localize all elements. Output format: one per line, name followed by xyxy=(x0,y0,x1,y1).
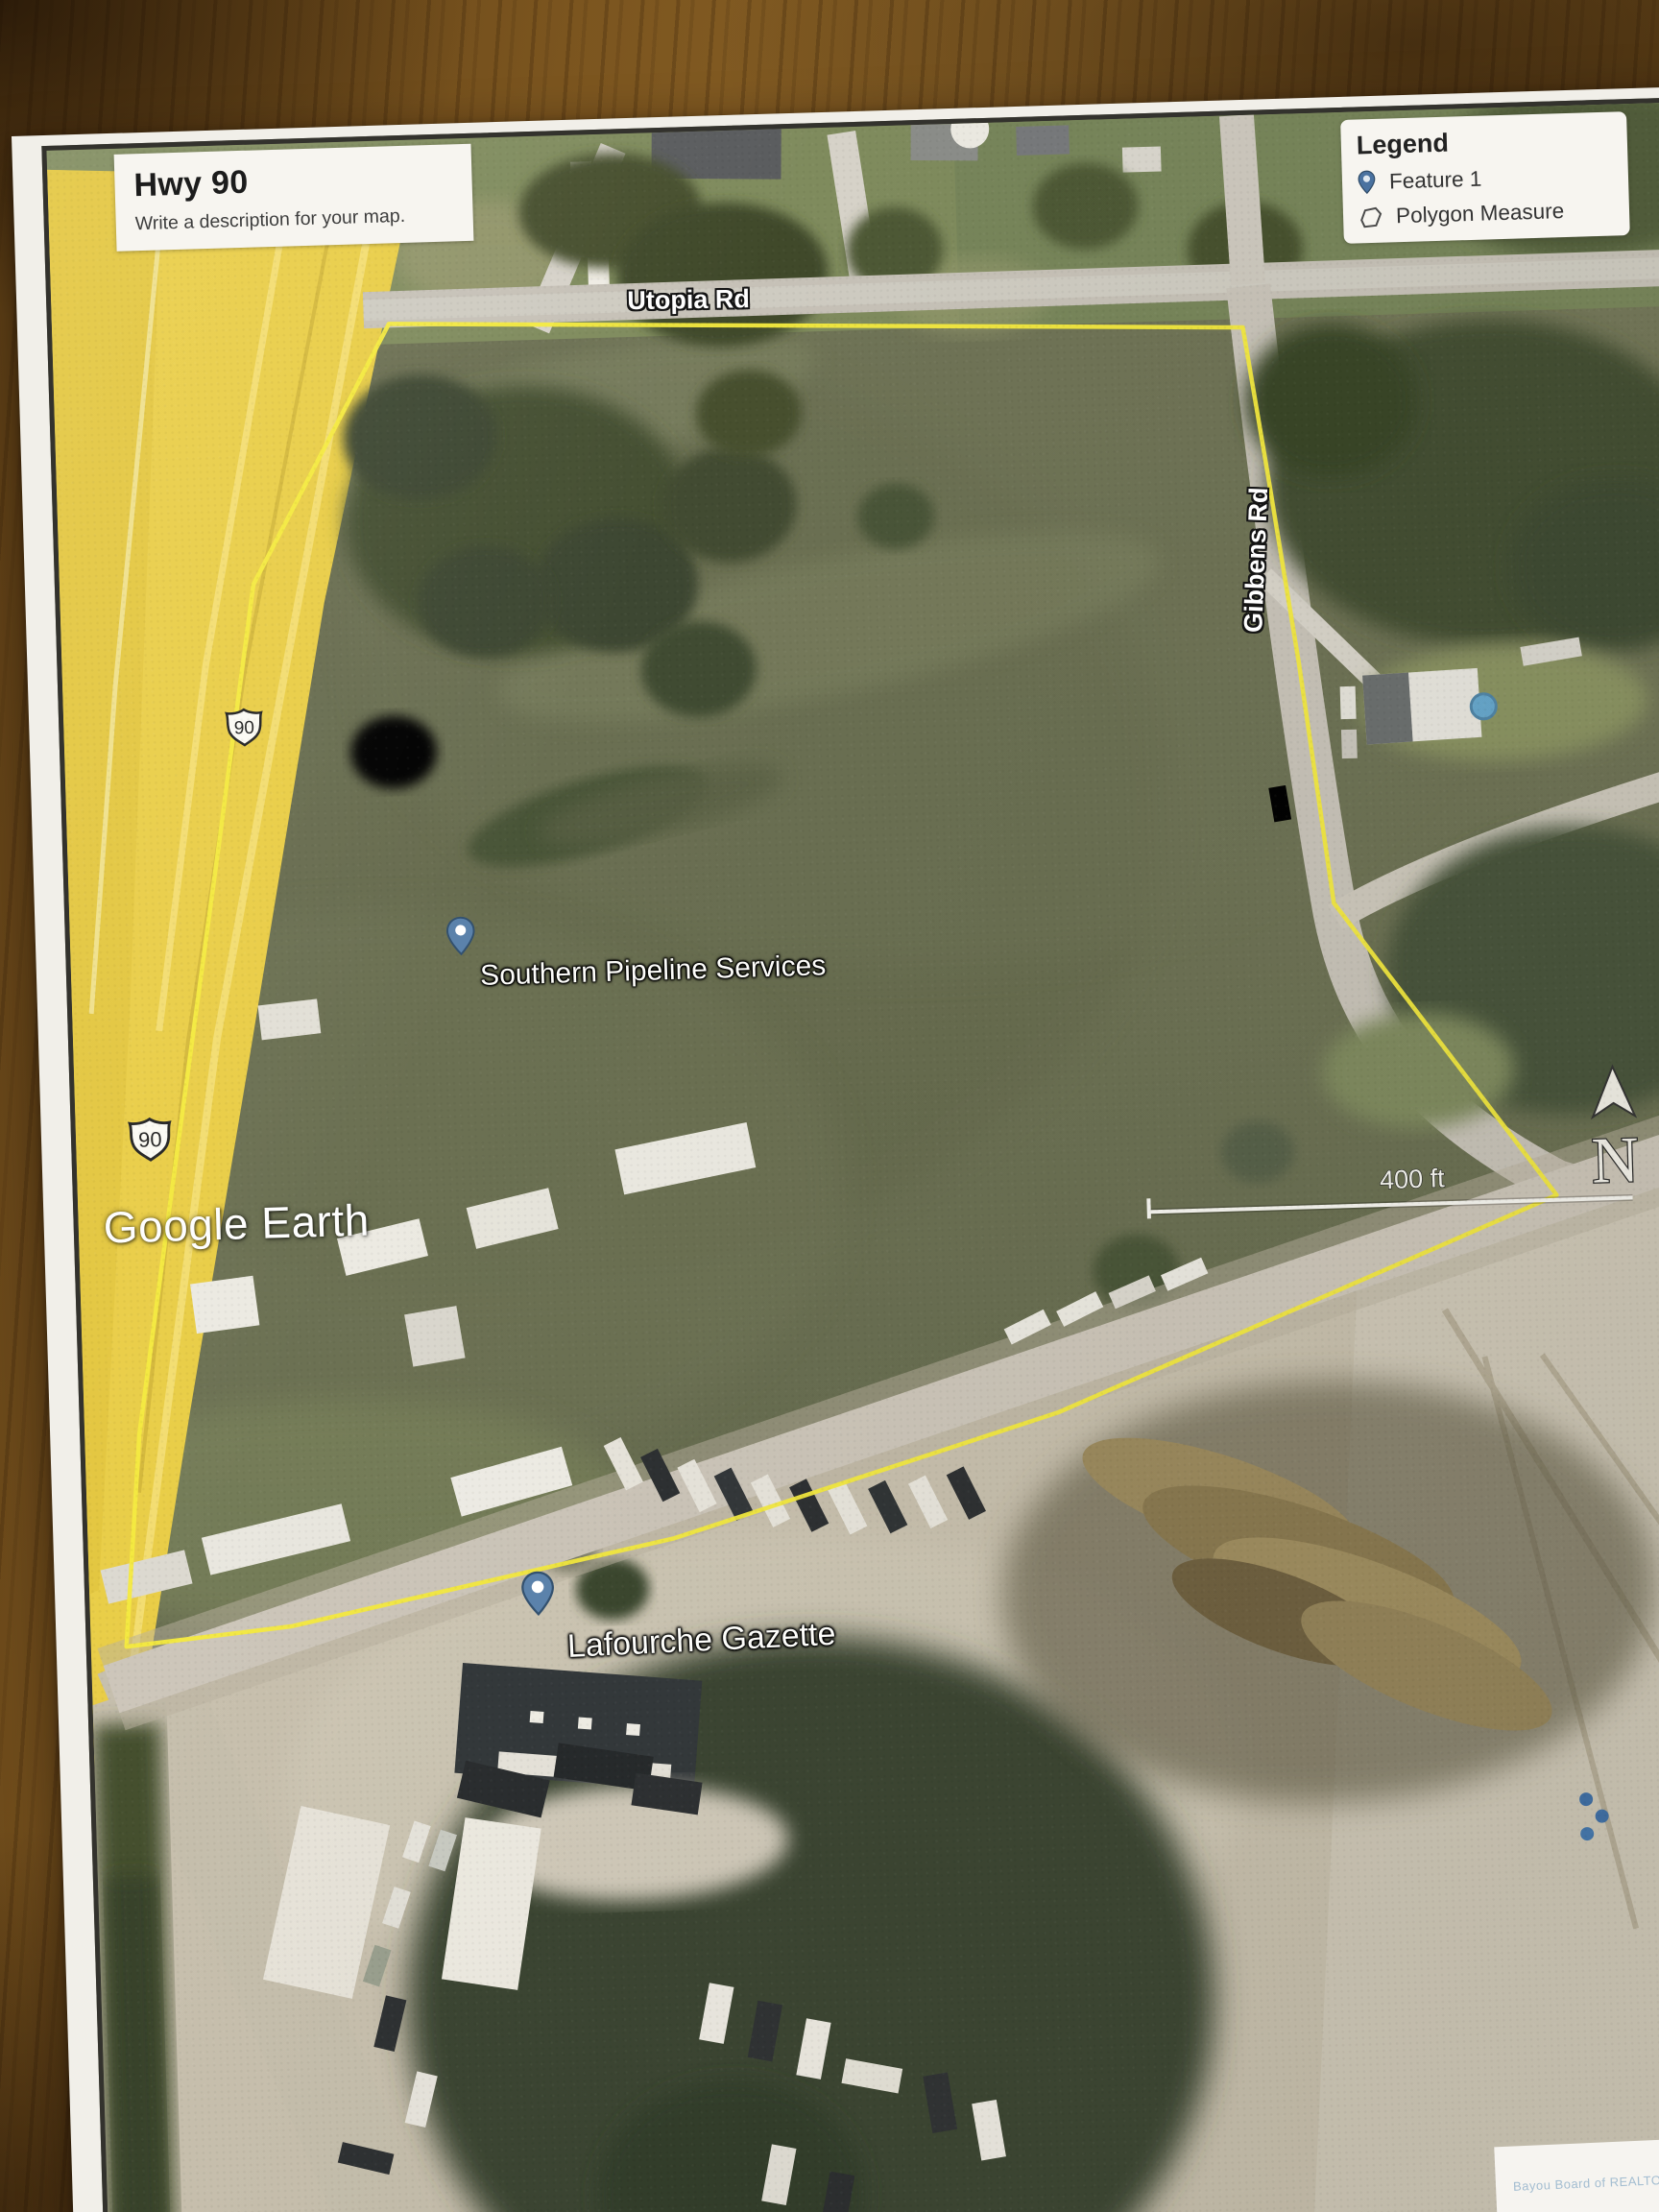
legend: Legend Feature 1 Polygon Measure xyxy=(1340,111,1630,244)
realtor-logo-text: Bayou Board of REALTORS™ xyxy=(1513,2172,1659,2194)
printed-page: 400 ft N 90 90 Utopia Rd Gibbens Rd xyxy=(12,86,1659,2212)
legend-title: Legend xyxy=(1356,124,1614,161)
north-letter: N xyxy=(1591,1122,1640,1196)
scale-label: 400 ft xyxy=(1380,1164,1446,1194)
shield-number: 90 xyxy=(138,1127,162,1152)
aerial-imagery: 400 ft N 90 90 xyxy=(46,103,1659,2212)
google-earth-watermark: Google Earth xyxy=(103,1193,371,1253)
legend-item-polygon: Polygon Measure xyxy=(1358,197,1617,229)
pool xyxy=(1471,693,1497,719)
legend-item-label: Polygon Measure xyxy=(1396,199,1565,228)
satellite-map: 400 ft N 90 90 Utopia Rd Gibbens Rd xyxy=(41,98,1659,2212)
realtor-logo-icon xyxy=(1504,2165,1506,2209)
pin-icon xyxy=(445,916,476,957)
realtor-watermark: Bayou Board of REALTORS™ xyxy=(1494,2139,1659,2212)
shield-number: 90 xyxy=(234,718,255,739)
map-title: Hwy 90 xyxy=(133,157,453,204)
photo-of-printed-map: 400 ft N 90 90 Utopia Rd Gibbens Rd xyxy=(0,0,1659,2212)
gibbens-road-north xyxy=(1237,115,1248,284)
legend-item-feature: Feature 1 xyxy=(1358,162,1616,195)
pin-icon xyxy=(1358,170,1377,196)
map-title-card: Hwy 90 Write a description for your map. xyxy=(114,144,474,252)
legend-item-label: Feature 1 xyxy=(1389,167,1482,195)
road-label-utopia: Utopia Rd xyxy=(627,284,750,316)
polygon-icon xyxy=(1358,205,1383,228)
feature-pin xyxy=(520,1571,557,1623)
map-subtitle: Write a description for your map. xyxy=(134,204,454,235)
feature-pin xyxy=(445,916,476,962)
pin-icon xyxy=(520,1571,556,1618)
